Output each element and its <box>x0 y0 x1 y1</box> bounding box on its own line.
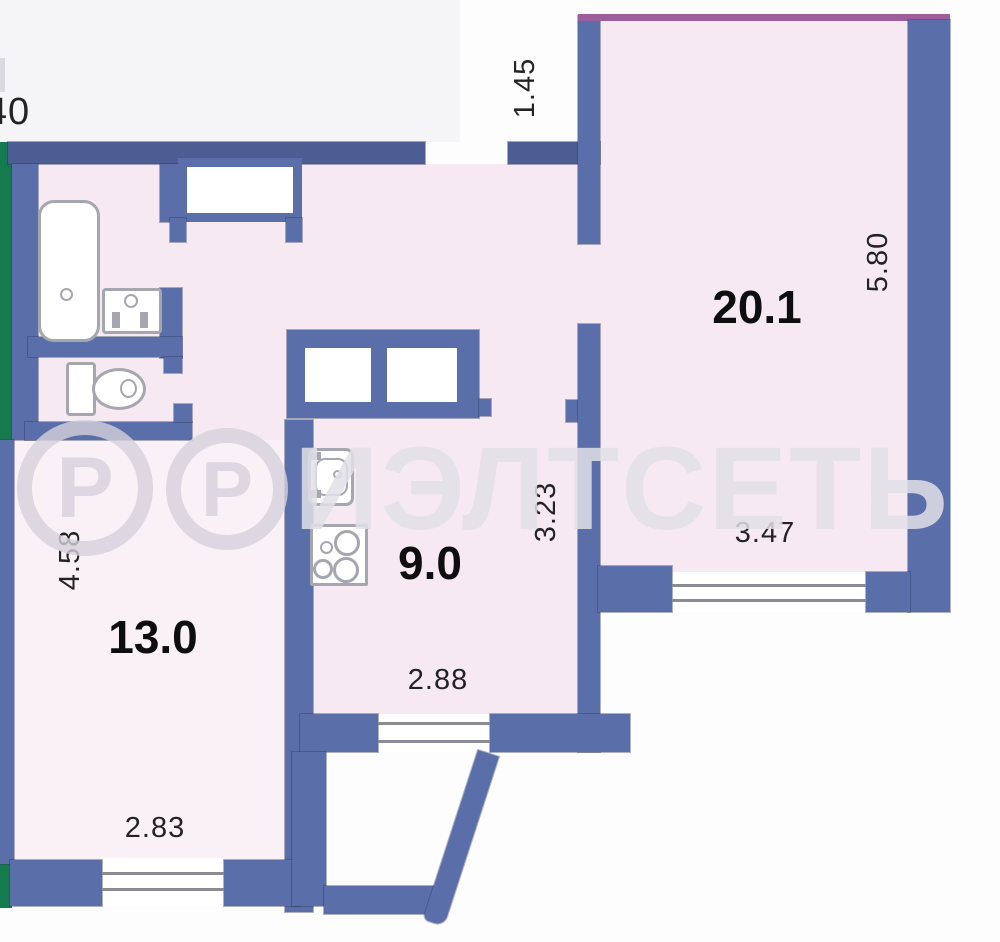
living-window-opening <box>672 572 866 612</box>
living-room-area: 20.1 <box>692 282 822 332</box>
wall-living-bottom-right <box>866 572 910 612</box>
wall-balcony-bottom <box>324 886 434 914</box>
watermark-logo-letter: Р <box>201 444 253 535</box>
entry-shaft-foot-right <box>286 218 302 242</box>
dim-edge-partial: 40 <box>0 92 34 132</box>
floor-plan: 40 1.45 20.1 5.80 3.47 9.0 3.23 2.88 13.… <box>0 0 1000 942</box>
toilet-bowl-detail <box>120 379 137 398</box>
wall-bedroom-left <box>0 440 14 864</box>
kitchen-cabinet-bay-2 <box>387 348 457 402</box>
edge-artifact <box>0 58 5 92</box>
entry-shaft-foot-left <box>170 218 186 242</box>
wall-bedroom-bottom-right <box>224 860 300 906</box>
living-window-line-2 <box>672 599 866 602</box>
wall-bedroom-bottom-left <box>10 860 102 906</box>
bathroom-sink-tap-left <box>112 312 120 328</box>
bedroom-area: 13.0 <box>93 612 213 662</box>
watermark-logo-2: Р <box>166 428 288 550</box>
wall-wc-door-jamb <box>164 357 182 373</box>
kitchen-window-line-2 <box>378 740 490 743</box>
wall-living-left-upper <box>578 16 600 244</box>
stove-burner-3 <box>313 559 333 579</box>
entry-shaft <box>178 158 302 222</box>
bathtub <box>38 200 100 342</box>
wall-kitchen-bottom-left <box>300 714 378 752</box>
wall-balcony-diagonal <box>423 750 499 926</box>
wall-wc-bottom-jamb <box>174 404 192 422</box>
dim-entry-depth: 1.45 <box>510 48 540 128</box>
background-tint <box>0 0 460 142</box>
wall-kitchen-bottom-right <box>490 714 630 752</box>
watermark-text: ИЭЛТСЕТЬ <box>294 428 950 550</box>
bathroom-sink-faucet <box>124 294 138 308</box>
kitchen-cabinet-bay-1 <box>305 348 371 402</box>
wall-bath-left <box>12 164 38 440</box>
dim-living-height: 5.80 <box>863 222 893 302</box>
bathtub-drain <box>60 288 73 301</box>
dim-kitchen-width: 2.88 <box>388 665 488 695</box>
toilet-bowl <box>92 368 146 410</box>
kitchen-cabinet-jamb <box>479 399 491 416</box>
bathroom-sink-tap-right <box>140 312 148 328</box>
dim-bedroom-width: 2.83 <box>105 813 205 843</box>
bedroom-window-opening <box>102 858 224 906</box>
stove-burner-2 <box>333 557 359 583</box>
wall-balcony-left <box>292 752 326 906</box>
bedroom-window-line-2 <box>102 888 224 891</box>
wall-living-bottom-left <box>598 566 672 612</box>
watermark-logo-1: Р <box>17 420 153 556</box>
living-window-line-1 <box>672 584 866 587</box>
bedroom-window-line-1 <box>102 872 224 875</box>
kitchen-window-line-1 <box>378 722 490 725</box>
kitchen-window-opening <box>378 714 490 752</box>
living-door-gap-floor <box>578 244 600 324</box>
watermark-logo-letter: Р <box>56 439 113 538</box>
wall-living-top-thin <box>578 14 950 21</box>
